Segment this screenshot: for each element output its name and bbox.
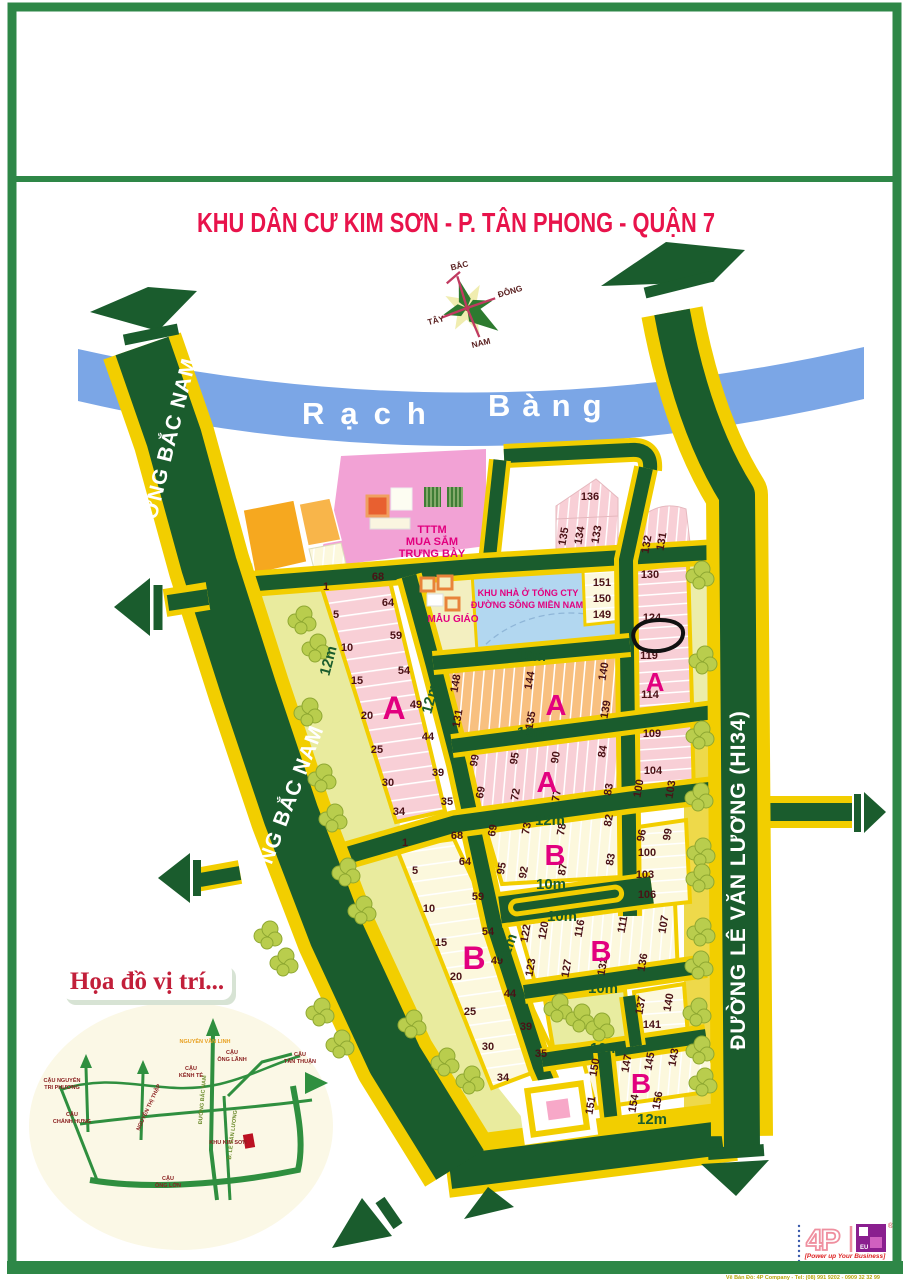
svg-text:Họa đồ vị trí...: Họa đồ vị trí... (70, 968, 224, 995)
svg-text:B: B (545, 840, 566, 872)
svg-text:Rạch: Rạch (302, 396, 442, 431)
svg-text:83: 83 (602, 782, 616, 796)
svg-text:68: 68 (451, 830, 463, 842)
svg-text:ĐƯỜNG LÊ VĂN LƯƠNG (HI34): ĐƯỜNG LÊ VĂN LƯƠNG (HI34) (726, 710, 750, 1050)
svg-text:5: 5 (412, 865, 418, 877)
svg-text:30: 30 (482, 1041, 494, 1053)
svg-text:136: 136 (581, 491, 599, 503)
svg-text:69: 69 (474, 785, 488, 799)
svg-text:10m: 10m (516, 648, 546, 665)
svg-text:90: 90 (549, 750, 563, 764)
svg-text:B: B (462, 940, 485, 976)
svg-text:TRƯNG BÀY: TRƯNG BÀY (399, 547, 466, 560)
svg-text:A: A (646, 667, 665, 697)
svg-text:150: 150 (593, 593, 611, 605)
svg-text:A: A (546, 690, 567, 722)
svg-text:KÊNH TẺ: KÊNH TẺ (179, 1071, 203, 1079)
svg-text:44: 44 (422, 731, 435, 743)
svg-text:Bàng: Bàng (488, 388, 614, 423)
svg-text:MUA SẮM: MUA SẮM (406, 535, 458, 548)
svg-text:EU: EU (860, 1245, 868, 1251)
svg-text:151: 151 (593, 577, 611, 589)
svg-text:39: 39 (520, 1021, 532, 1033)
svg-text:73: 73 (520, 821, 534, 835)
svg-text:69: 69 (486, 823, 500, 837)
svg-text:TTTM: TTTM (417, 524, 446, 536)
svg-text:A: A (382, 690, 405, 726)
svg-text:CẬU: CẬU (226, 1049, 238, 1056)
svg-text:130: 130 (641, 569, 659, 581)
svg-text:95: 95 (495, 861, 509, 875)
svg-text:35: 35 (441, 796, 453, 808)
svg-text:149: 149 (593, 609, 611, 621)
svg-text:44: 44 (504, 988, 517, 1000)
svg-text:15: 15 (351, 675, 363, 687)
svg-text:100: 100 (638, 847, 656, 859)
svg-text:10m: 10m (590, 1040, 620, 1057)
svg-text:CẬU: CẬU (66, 1111, 78, 1118)
svg-text:Vẽ Bản Đồ: 4P Company - Tel: (: Vẽ Bản Đồ: 4P Company - Tel: (08) 991 92… (726, 1275, 880, 1281)
svg-text:95: 95 (508, 751, 522, 765)
svg-text:82: 82 (602, 813, 616, 827)
svg-text:64: 64 (459, 856, 472, 868)
svg-text:30: 30 (382, 777, 394, 789)
svg-text:10m: 10m (517, 724, 547, 741)
svg-text:TÂN THUẬN: TÂN THUẬN (284, 1058, 316, 1065)
svg-text:12m: 12m (535, 812, 565, 829)
svg-text:ÔNG LỚN: ÔNG LỚN (155, 1181, 181, 1189)
svg-text:10m: 10m (547, 908, 577, 925)
svg-text:CẬU: CẬU (185, 1065, 197, 1072)
svg-text:10: 10 (423, 903, 435, 915)
svg-text:59: 59 (472, 891, 484, 903)
svg-text:72: 72 (509, 787, 523, 801)
svg-text:68: 68 (372, 571, 384, 583)
svg-text:NGUYỄN VĂN LINH: NGUYỄN VĂN LINH (179, 1038, 230, 1045)
svg-text:1: 1 (402, 837, 408, 849)
svg-text:20: 20 (361, 710, 373, 722)
svg-text:[Power up Your Business]: [Power up Your Business] (804, 1253, 886, 1260)
svg-text:20: 20 (450, 971, 462, 983)
svg-text:106: 106 (638, 889, 656, 901)
svg-text:34: 34 (393, 806, 406, 818)
svg-text:54: 54 (482, 926, 495, 938)
svg-text:ÔNG LÃNH: ÔNG LÃNH (217, 1055, 246, 1063)
svg-text:34: 34 (497, 1072, 510, 1084)
svg-text:CẬU: CẬU (294, 1051, 306, 1058)
svg-text:A: A (537, 767, 558, 799)
svg-text:83: 83 (604, 852, 618, 866)
svg-text:10m: 10m (588, 980, 618, 997)
svg-text:104: 104 (644, 765, 663, 777)
svg-text:64: 64 (382, 597, 395, 609)
svg-text:TRI PHƯƠNG: TRI PHƯƠNG (44, 1085, 80, 1091)
svg-text:12m: 12m (637, 1111, 667, 1128)
svg-text:CẬU: CẬU (162, 1175, 174, 1182)
svg-text:B: B (591, 936, 612, 968)
svg-text:ĐƯỜNG SÔNG MIỀN NAM: ĐƯỜNG SÔNG MIỀN NAM (471, 599, 583, 610)
svg-text:39: 39 (432, 767, 444, 779)
svg-text:15: 15 (435, 937, 447, 949)
svg-text:35: 35 (535, 1048, 547, 1060)
svg-text:96: 96 (635, 828, 649, 842)
svg-text:141: 141 (643, 1019, 661, 1031)
svg-text:99: 99 (661, 827, 675, 841)
svg-text:92: 92 (517, 865, 531, 879)
svg-text:59: 59 (390, 630, 402, 642)
svg-text:109: 109 (643, 728, 661, 740)
svg-text:B: B (631, 1068, 651, 1099)
svg-text:KHU NHÀ Ở TỔNG CTY: KHU NHÀ Ở TỔNG CTY (478, 587, 579, 598)
svg-text:54: 54 (398, 665, 411, 677)
svg-text:103: 103 (636, 869, 654, 881)
svg-text:10m: 10m (536, 876, 566, 893)
svg-text:10: 10 (341, 642, 353, 654)
svg-text:KHU DÂN CƯ KIM SƠN - P. TÂN PH: KHU DÂN CƯ KIM SƠN - P. TÂN PHONG - QUẬN… (197, 207, 715, 238)
svg-text:5: 5 (333, 609, 339, 621)
svg-text:MẪU GIÁO: MẪU GIÁO (427, 612, 478, 625)
svg-text:CẬU NGUYỄN: CẬU NGUYỄN (44, 1077, 81, 1084)
svg-text:25: 25 (464, 1006, 476, 1018)
svg-text:99: 99 (468, 753, 482, 767)
svg-text:25: 25 (371, 744, 383, 756)
svg-text:CHÁNH HƯNG: CHÁNH HƯNG (53, 1118, 91, 1125)
svg-text:1: 1 (323, 581, 329, 593)
